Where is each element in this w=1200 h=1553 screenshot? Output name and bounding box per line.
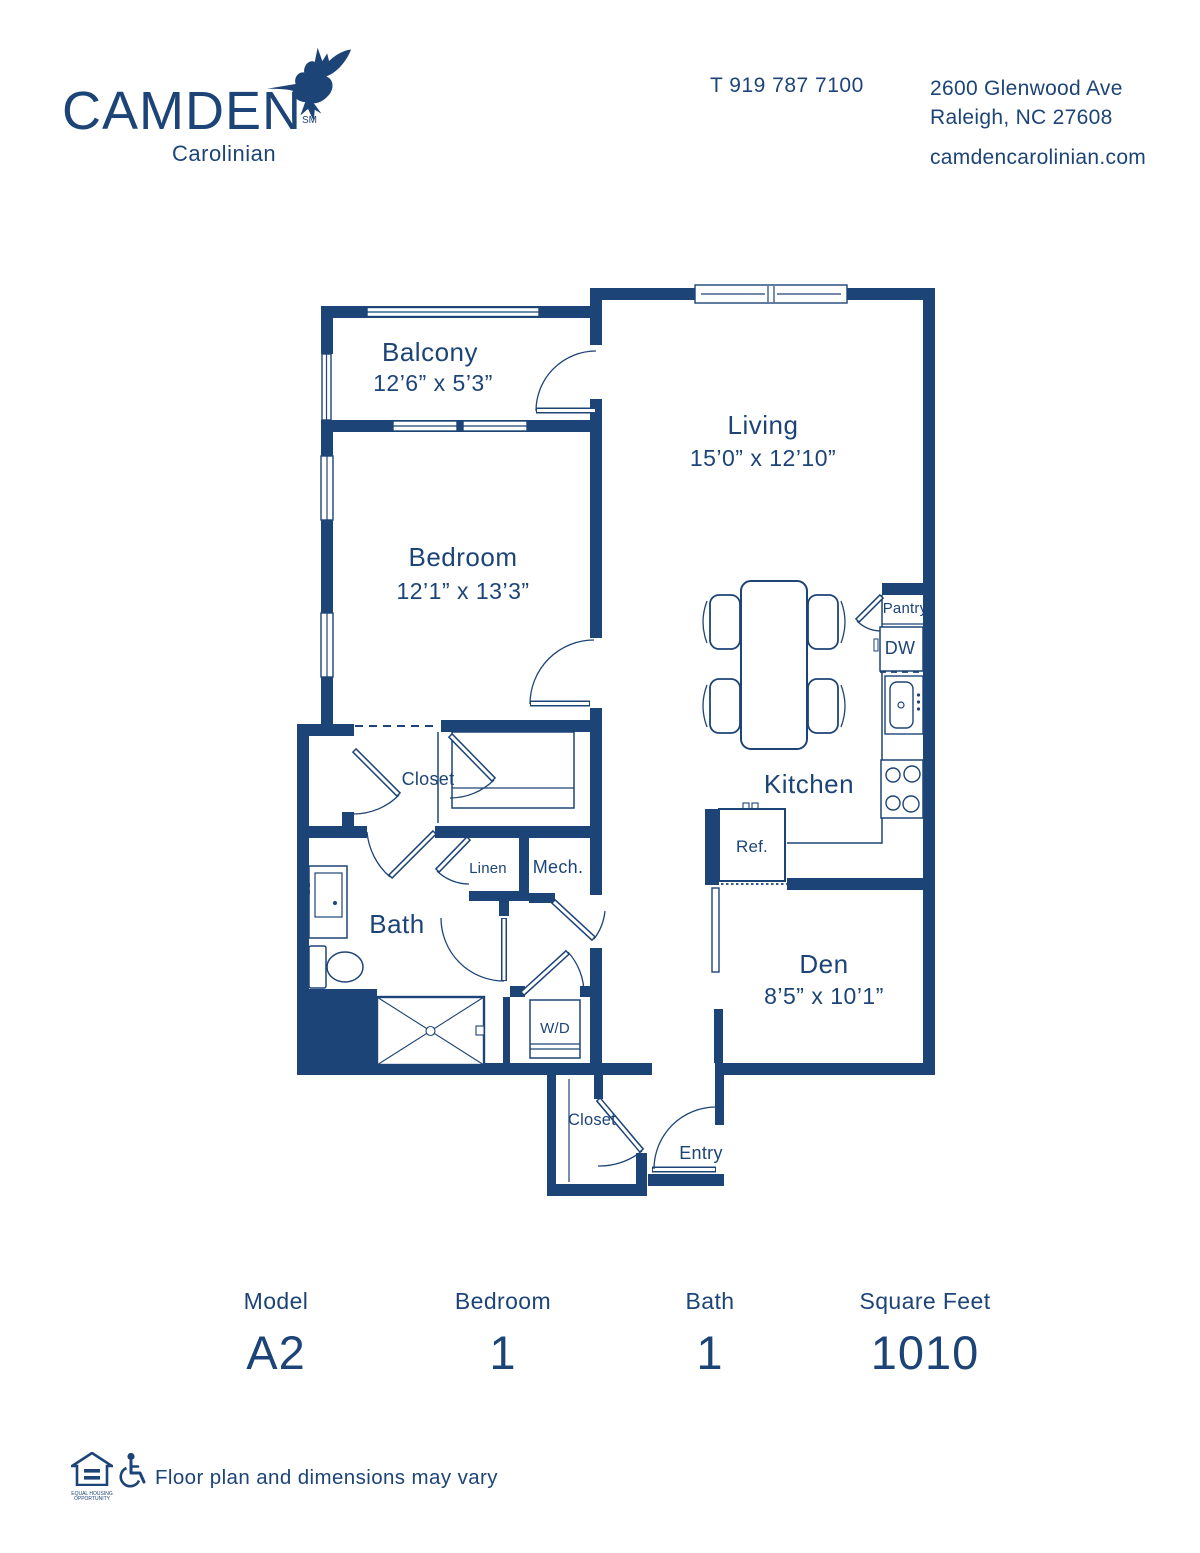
room-label-entry: Entry xyxy=(679,1143,723,1163)
phone-number: T 919 787 7100 xyxy=(710,74,864,98)
stat-label: Square Feet xyxy=(815,1288,1035,1315)
disclaimer-text: Floor plan and dimensions may vary xyxy=(155,1466,498,1490)
room-label-bath: Bath xyxy=(369,909,425,939)
room-label-kitchen: Kitchen xyxy=(764,769,854,799)
room-label-wd: W/D xyxy=(540,1020,570,1037)
room-label-den: Den xyxy=(799,949,848,979)
room-dims-living: 15’0” x 12’10” xyxy=(690,445,836,471)
stat-value: 1 xyxy=(393,1325,613,1380)
equal-housing-house-icon xyxy=(71,1452,113,1486)
stat-bedroom: Bedroom 1 xyxy=(393,1288,613,1380)
bathroom-sink xyxy=(303,866,347,938)
address-line1: 2600 Glenwood Ave xyxy=(930,74,1123,103)
stove xyxy=(881,760,923,818)
equal-housing-logo: EQUAL HOUSING OPPORTUNITY xyxy=(68,1452,116,1502)
room-label-bedroom: Bedroom xyxy=(409,542,518,572)
stat-value: 1010 xyxy=(815,1325,1035,1380)
address-line2: Raleigh, NC 27608 xyxy=(930,103,1123,132)
room-label-pantry: Pantry xyxy=(883,600,928,617)
address: 2600 Glenwood Ave Raleigh, NC 27608 xyxy=(930,74,1123,132)
website-url: camdencarolinian.com xyxy=(930,146,1146,170)
stat-model: Model A2 xyxy=(166,1288,386,1380)
stat-value: A2 xyxy=(166,1325,386,1380)
room-label-entry-closet: Closet xyxy=(568,1111,616,1129)
brand-logo: CAMDENSM Carolinian xyxy=(62,84,317,138)
kitchen-sink xyxy=(885,676,923,734)
room-label-living: Living xyxy=(728,410,799,440)
room-dims-bedroom: 12’1” x 13’3” xyxy=(396,578,529,604)
dining-table xyxy=(703,581,845,749)
room-dims-den: 8’5” x 10’1” xyxy=(764,983,884,1009)
stat-label: Bath xyxy=(600,1288,820,1315)
toilet xyxy=(309,946,363,988)
hummingbird-icon xyxy=(266,44,352,124)
room-label-bedroom-closet: Closet xyxy=(402,769,455,789)
room-label-ref: Ref. xyxy=(736,837,768,856)
stat-bath: Bath 1 xyxy=(600,1288,820,1380)
stat-label: Model xyxy=(166,1288,386,1315)
room-label-dw: DW xyxy=(885,638,916,658)
floorplan-drawing: Balcony 12’6” x 5’3” Living 15’0” x 12’1… xyxy=(297,283,942,1208)
room-label-balcony: Balcony xyxy=(382,337,478,367)
stat-value: 1 xyxy=(600,1325,820,1380)
community-name: Carolinian xyxy=(172,141,276,167)
room-dims-balcony: 12’6” x 5’3” xyxy=(373,370,493,396)
shower xyxy=(377,997,484,1065)
stat-square-feet: Square Feet 1010 xyxy=(815,1288,1035,1380)
floorplan-sheet: CAMDENSM Carolinian T 919 787 7100 2600 … xyxy=(0,0,1200,1553)
room-label-linen: Linen xyxy=(469,860,507,877)
room-label-mech: Mech. xyxy=(533,857,584,877)
stat-label: Bedroom xyxy=(393,1288,613,1315)
equal-housing-label: EQUAL HOUSING OPPORTUNITY xyxy=(68,1492,116,1502)
wheelchair-accessible-icon xyxy=(118,1452,148,1490)
